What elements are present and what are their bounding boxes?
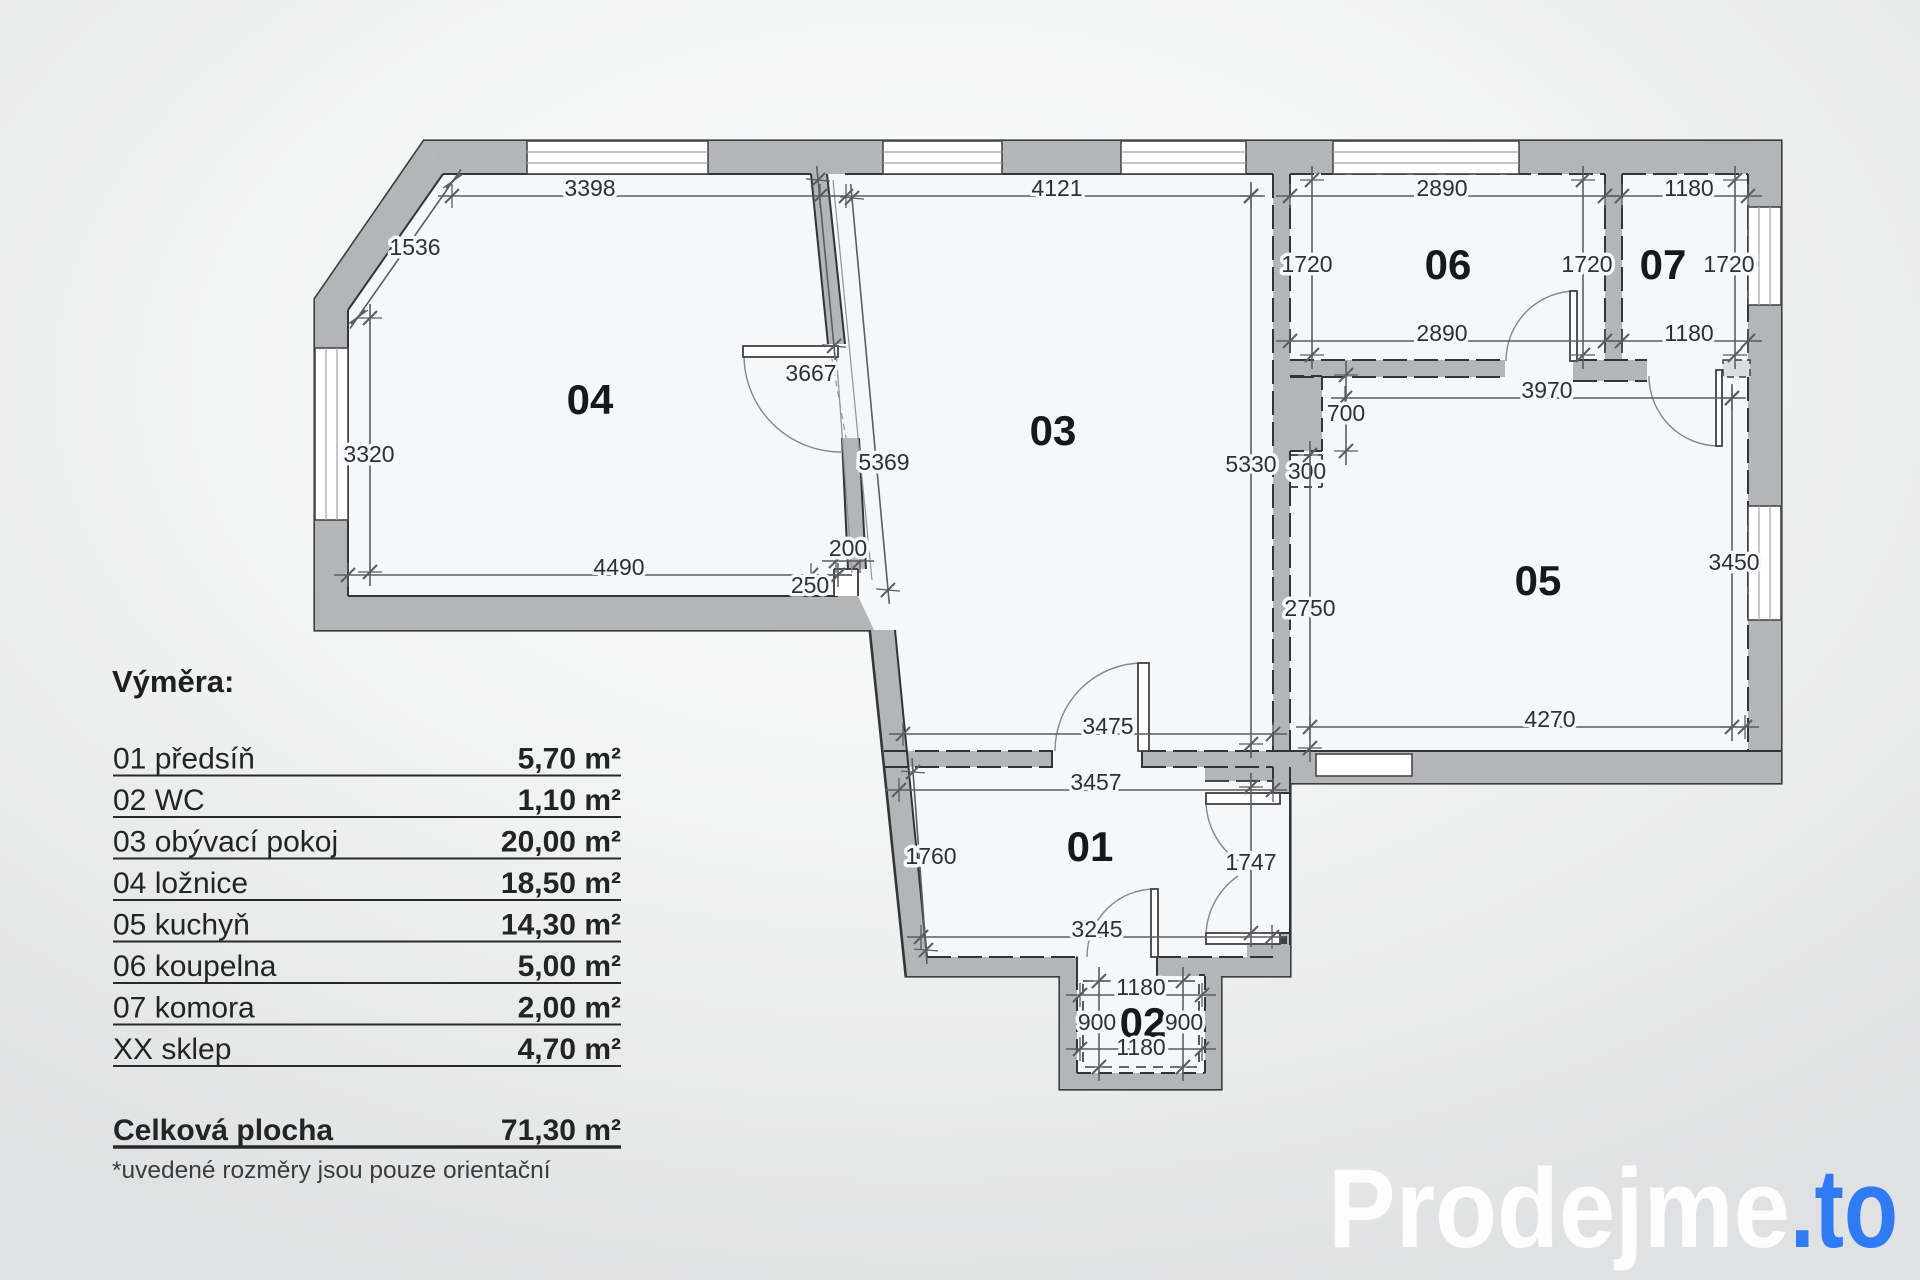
svg-text:2750: 2750 (1284, 595, 1335, 621)
svg-text:4490: 4490 (593, 554, 644, 580)
svg-text:900: 900 (1165, 1009, 1203, 1035)
svg-text:Výměra:: Výměra: (112, 664, 234, 699)
svg-text:5,70 m²: 5,70 m² (518, 743, 621, 776)
svg-text:01 předsíň: 01 předsíň (113, 743, 255, 776)
svg-text:05 kuchyň: 05 kuchyň (113, 909, 250, 942)
svg-text:1760: 1760 (905, 843, 956, 869)
svg-text:07: 07 (1640, 241, 1687, 288)
svg-text:2890: 2890 (1416, 175, 1467, 201)
svg-text:4270: 4270 (1524, 706, 1575, 732)
svg-text:250: 250 (791, 572, 829, 598)
svg-text:07 komora: 07 komora (113, 992, 255, 1025)
svg-text:04 ložnice: 04 ložnice (113, 867, 248, 900)
svg-text:700: 700 (1327, 400, 1365, 426)
svg-text:2890: 2890 (1416, 320, 1467, 346)
svg-text:4121: 4121 (1031, 175, 1082, 201)
svg-text:200: 200 (829, 535, 867, 561)
svg-text:1720: 1720 (1561, 251, 1612, 277)
svg-text:03: 03 (1030, 407, 1077, 454)
svg-text:5369: 5369 (858, 449, 909, 475)
svg-text:Celková plocha: Celková plocha (113, 1114, 333, 1147)
svg-text:02 WC: 02 WC (113, 784, 205, 817)
svg-text:5,00 m²: 5,00 m² (518, 950, 621, 983)
svg-text:20,00 m²: 20,00 m² (501, 826, 621, 859)
svg-text:2,00 m²: 2,00 m² (518, 992, 621, 1025)
svg-text:1536: 1536 (389, 234, 440, 260)
svg-text:18,50 m²: 18,50 m² (501, 867, 621, 900)
svg-text:1180: 1180 (1664, 320, 1713, 346)
svg-text:Prodejme: Prodejme (1328, 1146, 1790, 1271)
svg-text:1,10 m²: 1,10 m² (518, 784, 621, 817)
svg-text:1180: 1180 (1664, 175, 1713, 201)
svg-text:01: 01 (1067, 823, 1114, 870)
svg-text:06: 06 (1425, 241, 1472, 288)
svg-text:3320: 3320 (343, 441, 394, 467)
svg-text:14,30 m²: 14,30 m² (501, 909, 621, 942)
svg-text:1720: 1720 (1281, 251, 1332, 277)
svg-text:.to: .to (1790, 1146, 1898, 1271)
svg-text:05: 05 (1515, 557, 1562, 604)
svg-text:900: 900 (1078, 1009, 1116, 1035)
svg-text:1720: 1720 (1703, 251, 1754, 277)
svg-text:3667: 3667 (785, 360, 836, 386)
svg-text:*uvedené rozměry jsou pouze or: *uvedené rozměry jsou pouze orientační (112, 1157, 551, 1184)
svg-text:3475: 3475 (1082, 713, 1133, 739)
svg-text:03 obývací pokoj: 03 obývací pokoj (113, 826, 338, 859)
svg-text:5330: 5330 (1225, 451, 1276, 477)
svg-text:1747: 1747 (1225, 849, 1276, 875)
svg-text:04: 04 (567, 376, 614, 423)
svg-text:3450: 3450 (1708, 549, 1759, 575)
svg-text:3245: 3245 (1071, 916, 1122, 942)
svg-text:XX sklep: XX sklep (113, 1033, 231, 1066)
svg-text:3398: 3398 (564, 175, 615, 201)
svg-text:3970: 3970 (1521, 377, 1572, 403)
svg-text:1180: 1180 (1116, 1034, 1165, 1060)
svg-text:71,30 m²: 71,30 m² (501, 1114, 621, 1147)
svg-text:4,70 m²: 4,70 m² (518, 1033, 621, 1066)
svg-text:300: 300 (1288, 458, 1326, 484)
svg-text:06 koupelna: 06 koupelna (113, 950, 277, 983)
svg-text:1180: 1180 (1116, 974, 1165, 1000)
svg-text:3457: 3457 (1070, 769, 1121, 795)
